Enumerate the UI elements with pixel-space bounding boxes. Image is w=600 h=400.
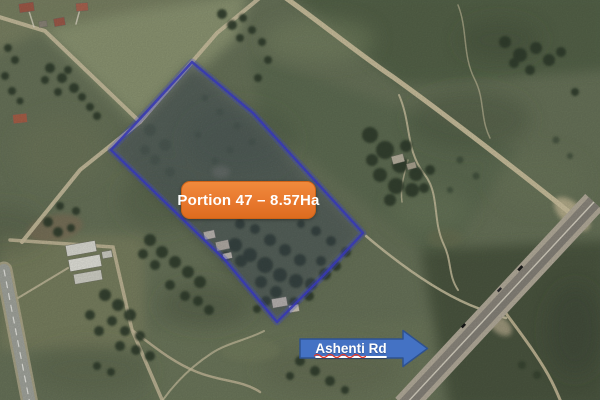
listing-aerial-screenshot: Portion 47 – 8.57Ha Ashenti Rd <box>0 0 600 400</box>
spellcheck-squiggle-icon <box>314 353 366 359</box>
parcel-label-text: Portion 47 – 8.57Ha <box>177 192 319 209</box>
parcel-label: Portion 47 – 8.57Ha <box>181 181 316 219</box>
